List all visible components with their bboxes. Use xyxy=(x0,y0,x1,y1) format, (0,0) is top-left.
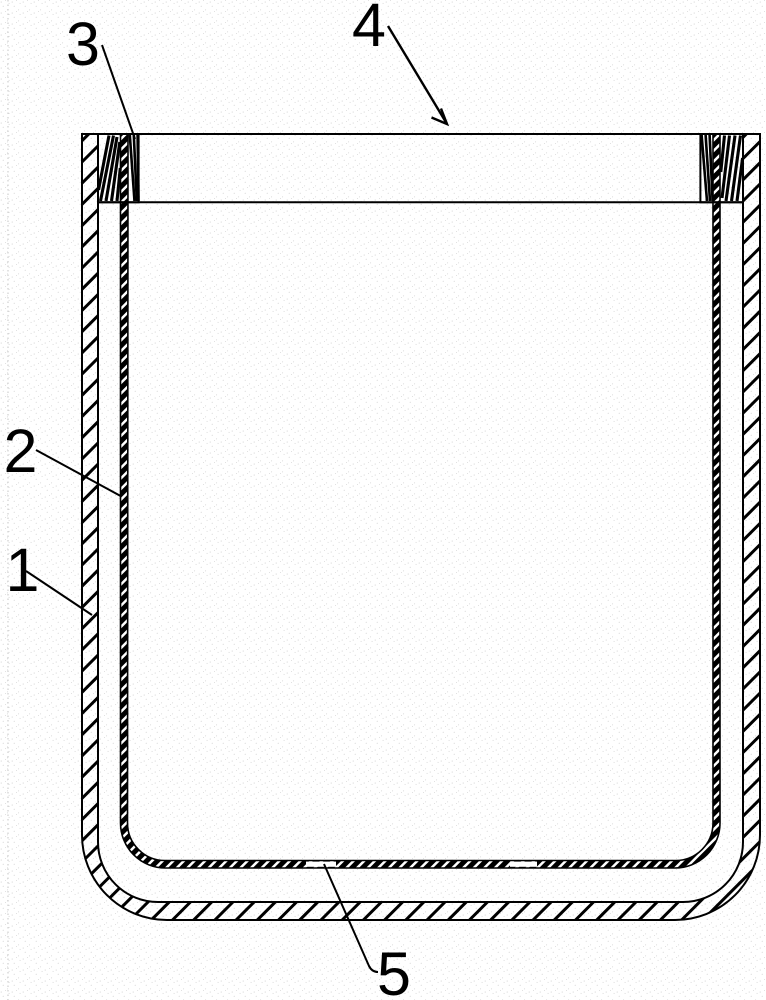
svg-text:4: 4 xyxy=(352,0,386,59)
svg-text:3: 3 xyxy=(66,10,100,78)
svg-text:1: 1 xyxy=(6,536,40,604)
svg-text:2: 2 xyxy=(4,417,38,485)
svg-text:5: 5 xyxy=(377,940,411,1000)
